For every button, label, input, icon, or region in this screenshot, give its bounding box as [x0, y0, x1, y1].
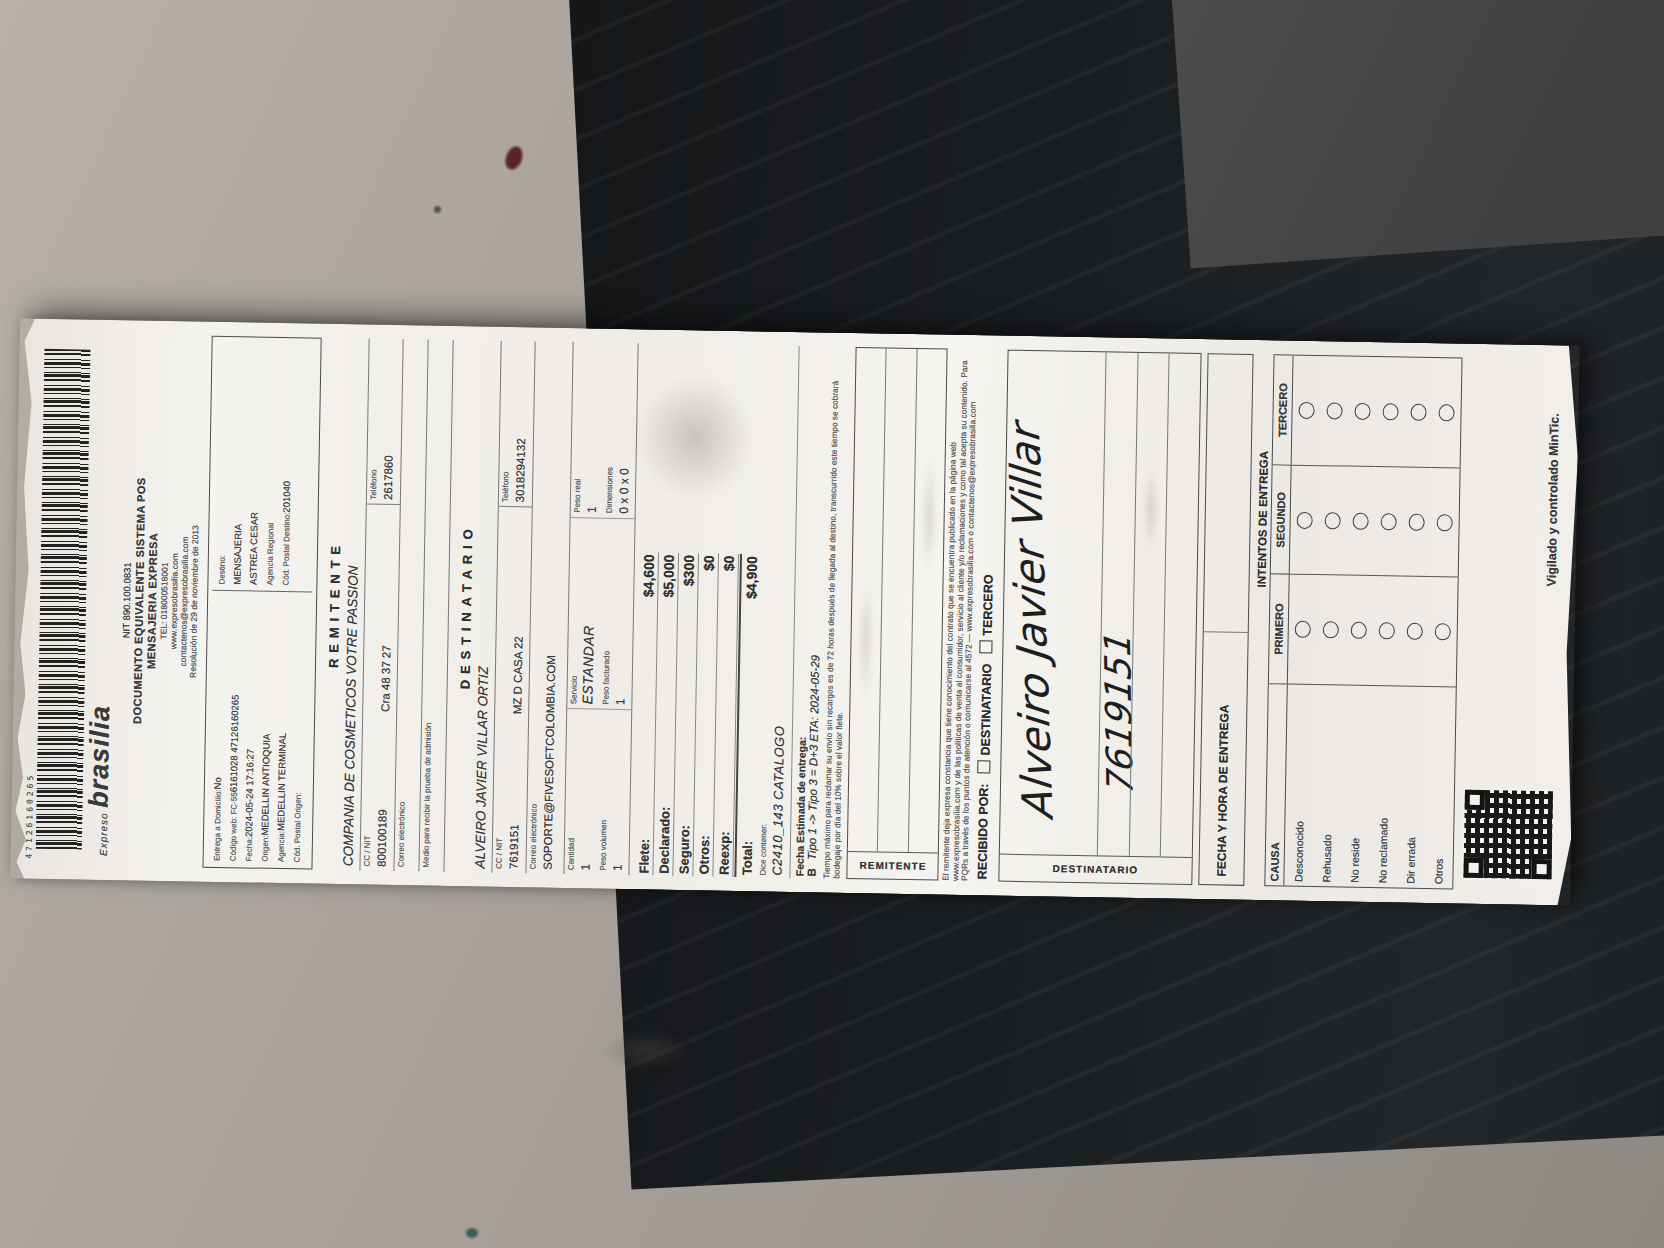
admission-details-box: Entrega a Domicilio:No Código web: FC-55… [202, 336, 321, 870]
mark-circle [1382, 403, 1398, 420]
package-cell: Peso real1 [571, 342, 606, 518]
charges-section: Flete:$4,600 Declarado:$5,000 Seguro:$30… [633, 343, 764, 877]
floor-smudge [600, 1030, 690, 1070]
received-by-option-tercero: TERCERO [979, 574, 995, 653]
charge-value: $4,600 [640, 554, 657, 597]
package-value: 0 x 0 x 0 [617, 468, 632, 514]
package-value: 1 [585, 506, 599, 513]
mark-circle [1354, 403, 1370, 420]
package-label: Dimensiones [605, 347, 617, 514]
sender-phone-label: Teléfono [369, 343, 381, 500]
mark-circle [1434, 623, 1450, 640]
admission-field: Agencia Regional [262, 344, 279, 586]
background-corner-surface [1171, 0, 1664, 268]
recipient-id-cell: CC / NIT 7619151 [492, 718, 528, 874]
package-cell: Peso volumen1 [596, 710, 631, 875]
option-label: TERCERO [980, 574, 995, 635]
field-value: 201040 [281, 481, 293, 513]
admission-destination-column: Destino: MENSAJERIA ASTREA CESAR Agencia… [212, 337, 316, 593]
recipient-address: MZ D CASA 22 [511, 636, 525, 714]
field-value: MEDELLIN ANTIOQUIA [259, 734, 272, 836]
barcode-section: 47126160265 [24, 333, 90, 866]
company-header: Expreso brasilia NIT 890.100.0831 DOCUME… [87, 334, 203, 868]
field-value: MEDELLIN TERMINAL [275, 733, 288, 831]
recipient-id-label: CC / NIT [494, 722, 506, 869]
sender-signature-side-label: REMITENTE [847, 851, 937, 880]
mark-circle [1410, 404, 1426, 421]
recipient-section: DESTINATARIO ALVEIRO JAVIER VILLAR ORTIZ… [454, 340, 573, 874]
mintic-notice: Vigilado y controlado MinTic. [1544, 413, 1561, 586]
field-value: ASTREA CESAR [247, 512, 259, 585]
paper-smudge [634, 371, 756, 503]
attempt-cell [1287, 575, 1317, 685]
sender-id-cell: CC / NIT 800100189 [360, 715, 396, 871]
package-details-grid: Cantidad1 ServicioESTANDAR Peso real1 Pe… [564, 342, 638, 875]
col-header-tercero: TERCERO [1272, 355, 1293, 466]
eta-prefix: B [805, 868, 817, 877]
attempt-cell [1289, 466, 1319, 576]
field-label: Agencia: [277, 831, 287, 862]
delivery-datetime-blank [1203, 354, 1252, 632]
faint-stamp [856, 580, 876, 700]
charge-value: $300 [680, 555, 697, 586]
charge-label: Total: [739, 755, 756, 875]
package-label: Peso facturado [601, 522, 613, 705]
faint-stamp [1141, 464, 1161, 554]
admission-field: MENSAJERIA [230, 343, 247, 585]
attempt-cell [1317, 466, 1347, 576]
recipient-phone-cell: Teléfono 3018294132 [499, 341, 535, 508]
field-label: Entrega a Domicilio: [213, 789, 223, 861]
field-label: Cód. Postal Origen: [293, 792, 303, 862]
mark-circle [1436, 514, 1452, 531]
sender-phone-value: 2617860 [382, 455, 395, 500]
checkbox-destinatario [977, 760, 990, 773]
package-cell: Cantidad1 [564, 709, 599, 874]
attempt-cell [1431, 358, 1461, 469]
sender-id-label: CC / NIT [362, 719, 374, 866]
photo-scene: 47126160265 Expreso brasilia NIT 890.100… [0, 0, 1664, 1248]
admission-field: Cód. Postal Origen: [290, 599, 308, 863]
checkbox-tercero [979, 640, 992, 653]
charge-value: $4,900 [743, 556, 760, 599]
attempt-cell [1429, 468, 1459, 578]
qr-finder-top-right [1464, 790, 1484, 810]
attempts-title-spacer [1250, 684, 1266, 886]
recipient-id-value: 7619151 [507, 824, 520, 869]
attempt-cell [1315, 576, 1345, 686]
mark-circle [1438, 404, 1454, 421]
col-header-primero: PRIMERO [1268, 575, 1289, 684]
field-value: 6161028 47126160265 [228, 694, 241, 792]
option-label: DESTINATARIO [978, 663, 994, 755]
charge-label: Flete: [636, 753, 653, 873]
qr-finder-top-left [1463, 858, 1483, 878]
attempt-cell [1291, 356, 1321, 467]
barcode [36, 349, 91, 850]
admission-field: Agencia:MEDELLIN TERMINAL [274, 598, 292, 862]
recipient-signature-rows: Alveiro Javier Villar 7619151 [999, 351, 1200, 857]
sender-address: Cra 48 37 27 [379, 645, 393, 712]
admission-field: Cód. Postal Destino:201040 [278, 344, 295, 586]
admission-origin-column: Entrega a Domicilio:No Código web: FC-55… [207, 591, 312, 868]
recipient-signature-side-label: DESTINATARIO [999, 854, 1191, 884]
package-cell: Peso facturado1 [599, 518, 634, 710]
field-value: MENSAJERIA [231, 524, 243, 585]
charge-label: Reexp: [716, 755, 733, 875]
delivery-datetime-box: FECHA Y HORA DE ENTREGA [1198, 353, 1253, 886]
charge-value: $5,000 [660, 554, 677, 597]
received-by-label: RECIBIDO POR: [975, 783, 991, 879]
field-label: Origen: [261, 835, 270, 861]
attempt-cell [1319, 356, 1349, 467]
sender-section: REMITENTE COMPANIA DE COSMETICOS VOTRE P… [322, 338, 453, 872]
charge-label: Otros: [696, 754, 713, 874]
signature-row: Alveiro Javier Villar 7619151 [999, 351, 1106, 856]
package-label: Peso volumen [598, 714, 610, 871]
sender-phone-cell: Teléfono 2617860 [367, 339, 403, 506]
recipient-email-value: SOPORTE@FIVESOFTCOLOMBIA.COM [541, 655, 557, 870]
cause-label: No reside [1340, 685, 1372, 887]
sender-signature-rows [848, 348, 947, 852]
mark-circle [1294, 621, 1310, 638]
attempt-cell [1373, 467, 1403, 577]
mark-circle [1296, 512, 1312, 529]
charge-label: Declarado: [656, 754, 673, 874]
attempt-cell [1371, 577, 1401, 687]
recipient-phone-value: 3018294132 [514, 438, 527, 502]
dark-speck [434, 206, 441, 213]
mark-circle [1326, 402, 1342, 419]
qr-code [1461, 788, 1555, 882]
charge-label: Seguro: [676, 754, 693, 874]
attempt-cell [1375, 357, 1405, 468]
admission-field: Destino: [214, 343, 231, 585]
admission-field: Origen:MEDELLIN ANTIOQUIA [258, 598, 276, 862]
delivery-datetime-label: FECHA Y HORA DE ENTREGA [1199, 631, 1247, 885]
cause-label: Otros [1424, 687, 1456, 889]
mark-circle [1322, 621, 1338, 638]
attempt-cell [1345, 467, 1375, 577]
attempt-cell [1347, 357, 1377, 468]
package-label: Cantidad [566, 713, 578, 870]
charge-value: $0 [721, 556, 737, 572]
receipt-paper-wrapper: 47126160265 Expreso brasilia NIT 890.100… [10, 318, 1580, 905]
faint-stamp [919, 456, 939, 576]
sender-signature-box: REMITENTE [846, 347, 947, 881]
attempt-cell [1343, 576, 1373, 686]
mark-circle [1380, 513, 1396, 530]
field-label: Destino: [217, 555, 227, 585]
mark-circle [1298, 402, 1314, 419]
brand-logo-main: brasilia [83, 705, 115, 808]
package-cell: ServicioESTANDAR [567, 518, 602, 710]
cause-label: Dir errada [1396, 686, 1428, 888]
attempt-cell [1403, 358, 1433, 469]
admission-field: ASTREA CESAR [246, 343, 263, 585]
col-header-segundo: SEGUNDO [1270, 466, 1291, 575]
maroon-speck [502, 144, 525, 172]
recipient-phone-label: Teléfono [501, 345, 513, 502]
attempts-table: CAUSA PRIMERO SEGUNDO TERCERO Desconocid… [1264, 354, 1462, 889]
cause-label: Desconocido [1284, 684, 1316, 886]
recipient-signature-label: DESTINATARIO [1052, 863, 1138, 875]
sender-address-cell: Cra 48 37 27 [363, 505, 400, 716]
package-value: 1 [578, 864, 592, 871]
contents-value: C2410_143 CATALOGO [769, 725, 787, 875]
package-value: ESTANDAR [579, 625, 596, 704]
handwritten-name: Alveiro Javier Villar [1002, 424, 1060, 822]
recipient-signature-box: DESTINATARIO Alveiro Javier Villar 76191… [998, 350, 1201, 885]
mark-circle [1350, 622, 1366, 639]
brand-logo-small: Expreso [98, 812, 110, 856]
mark-circle [1324, 512, 1340, 529]
mark-circle [1352, 513, 1368, 530]
attempt-cell [1399, 577, 1429, 687]
receipt-footer: Vigilado y controlado MinTic. [1453, 358, 1572, 892]
attempt-cell [1401, 468, 1431, 578]
field-value: No [212, 777, 223, 789]
admission-field: Código web: FC-556161028 47126160265 [226, 598, 244, 862]
attempt-cell [1427, 578, 1457, 688]
package-value: 1 [613, 698, 627, 705]
field-value: 2024-05-24 17:16:27 [243, 749, 256, 837]
admission-field: Fecha:2024-05-24 17:16:27 [242, 598, 260, 862]
cause-label: No reclamado [1368, 686, 1400, 888]
field-label: Agencia Regional [265, 522, 275, 585]
field-label: Código web: FC-55 [229, 792, 239, 861]
sender-id-value: 800100189 [375, 809, 388, 867]
received-by-option-destinatario: DESTINATARIO [977, 663, 994, 773]
charge-value: $0 [701, 555, 717, 571]
package-label: Peso real [573, 346, 585, 513]
cause-label: Rehusado [1312, 685, 1344, 887]
field-label: Cód. Postal Destino: [281, 513, 291, 586]
mark-circle [1408, 514, 1424, 531]
recipient-address-cell: MZ D CASA 22 [495, 507, 532, 718]
admission-field: Entrega a Domicilio:No [210, 597, 228, 861]
green-speck [466, 1228, 478, 1238]
sender-signature-label: REMITENTE [859, 860, 926, 872]
mark-circle [1378, 622, 1394, 639]
package-cell: Dimensiones0 x 0 x 0 [603, 343, 638, 519]
field-label: Fecha: [245, 837, 254, 862]
qr-finder-bottom-left [1531, 859, 1551, 879]
package-value: 1 [610, 864, 624, 871]
receipt-paper: 47126160265 Expreso brasilia NIT 890.100… [10, 318, 1580, 905]
mark-circle [1406, 623, 1422, 640]
eta-value: Tipo 1 -> Tipo 3 = D+3 ETA: 2024-05-29 [806, 655, 822, 860]
